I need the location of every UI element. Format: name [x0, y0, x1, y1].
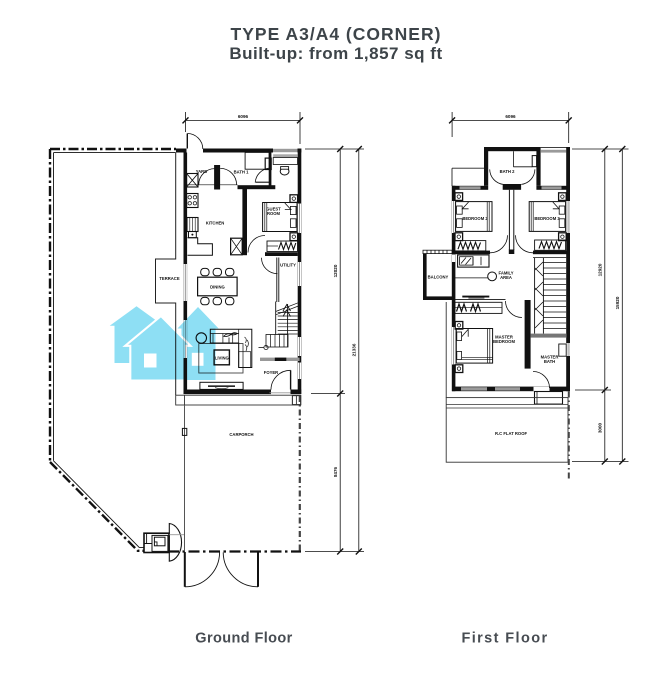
svg-text:TERRACE: TERRACE	[159, 276, 179, 281]
svg-text:12020: 12020	[333, 264, 338, 277]
svg-text:12920: 12920	[598, 263, 603, 276]
svg-text:6096: 6096	[238, 114, 249, 119]
svg-text:DINING: DINING	[210, 284, 225, 289]
svg-text:8476: 8476	[333, 466, 338, 477]
svg-text:AREA: AREA	[500, 275, 512, 280]
svg-text:BEDROOM: BEDROOM	[493, 339, 515, 344]
svg-text:UTILITY: UTILITY	[280, 263, 296, 268]
svg-text:BATH: BATH	[544, 359, 555, 364]
svg-text:BEDROOM 3: BEDROOM 3	[534, 216, 560, 221]
svg-text:TYPE A3/A4 (CORNER): TYPE A3/A4 (CORNER)	[231, 24, 442, 44]
svg-text:CARPORCH: CARPORCH	[229, 432, 253, 437]
svg-text:3000: 3000	[598, 422, 603, 433]
svg-text:21336: 21336	[352, 343, 357, 356]
svg-text:BATH 1: BATH 1	[234, 170, 249, 175]
svg-text:ROOM: ROOM	[267, 211, 281, 216]
svg-text:First Floor: First Floor	[461, 631, 548, 647]
svg-text:BALCONY: BALCONY	[428, 275, 449, 280]
svg-text:R.C FLAT ROOF: R.C FLAT ROOF	[495, 431, 527, 436]
svg-text:FOYER: FOYER	[264, 370, 278, 375]
svg-text:LIVING: LIVING	[215, 355, 229, 360]
svg-text:BATH 2: BATH 2	[500, 169, 515, 174]
svg-text:Built-up: from 1,857 sq ft: Built-up: from 1,857 sq ft	[229, 44, 442, 63]
svg-text:KITCHEN: KITCHEN	[206, 221, 225, 226]
svg-text:6096: 6096	[505, 114, 516, 119]
svg-text:15920: 15920	[615, 296, 620, 309]
svg-text:Ground Floor: Ground Floor	[195, 631, 292, 647]
svg-text:BEDROOM 2: BEDROOM 2	[462, 216, 488, 221]
